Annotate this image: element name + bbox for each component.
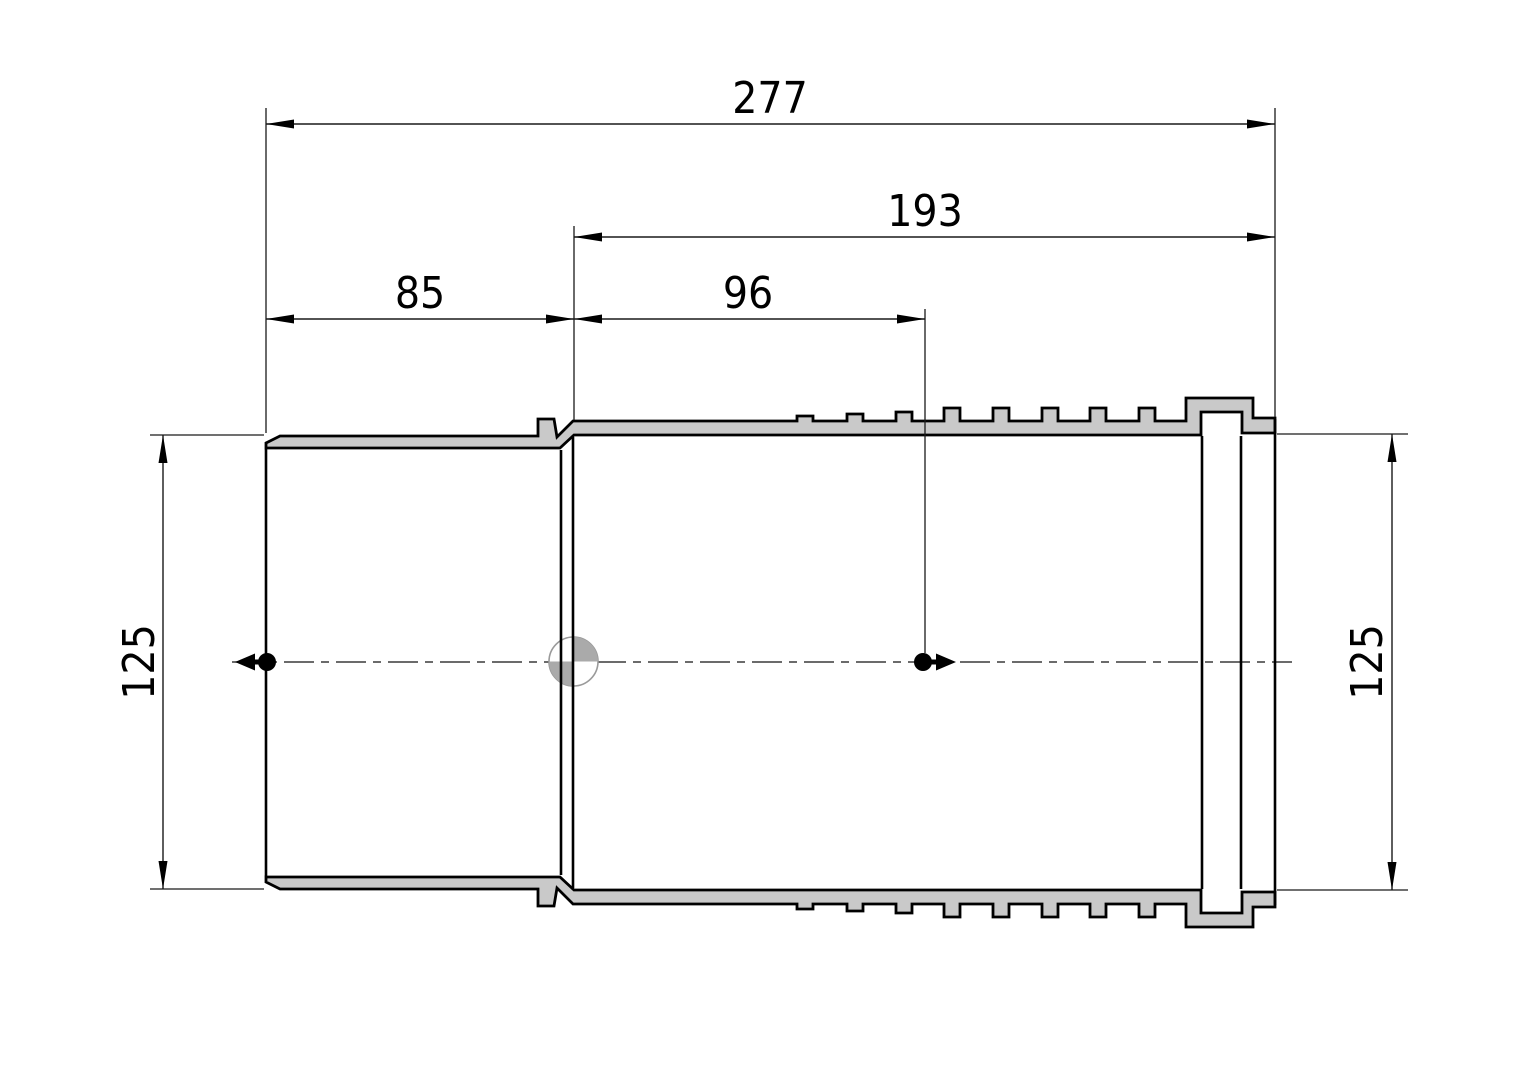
dim-label-left-diameter: 125 bbox=[114, 624, 165, 700]
dim-label-socket-section: 85 bbox=[395, 268, 445, 319]
marker-left-dot-icon bbox=[258, 653, 276, 671]
dim-label-overall-length: 277 bbox=[732, 73, 808, 124]
drawing-page: 277 193 85 96 125 125 bbox=[0, 0, 1528, 1080]
dim-label-right-diameter: 125 bbox=[1342, 624, 1393, 700]
dim-label-marker-offset: 96 bbox=[723, 268, 773, 319]
dim-label-ribbed-section: 193 bbox=[887, 186, 963, 237]
marker-right-dot-icon bbox=[914, 653, 932, 671]
drawing-background bbox=[0, 0, 1528, 1080]
technical-drawing-canvas: 277 193 85 96 125 125 bbox=[0, 0, 1528, 1080]
